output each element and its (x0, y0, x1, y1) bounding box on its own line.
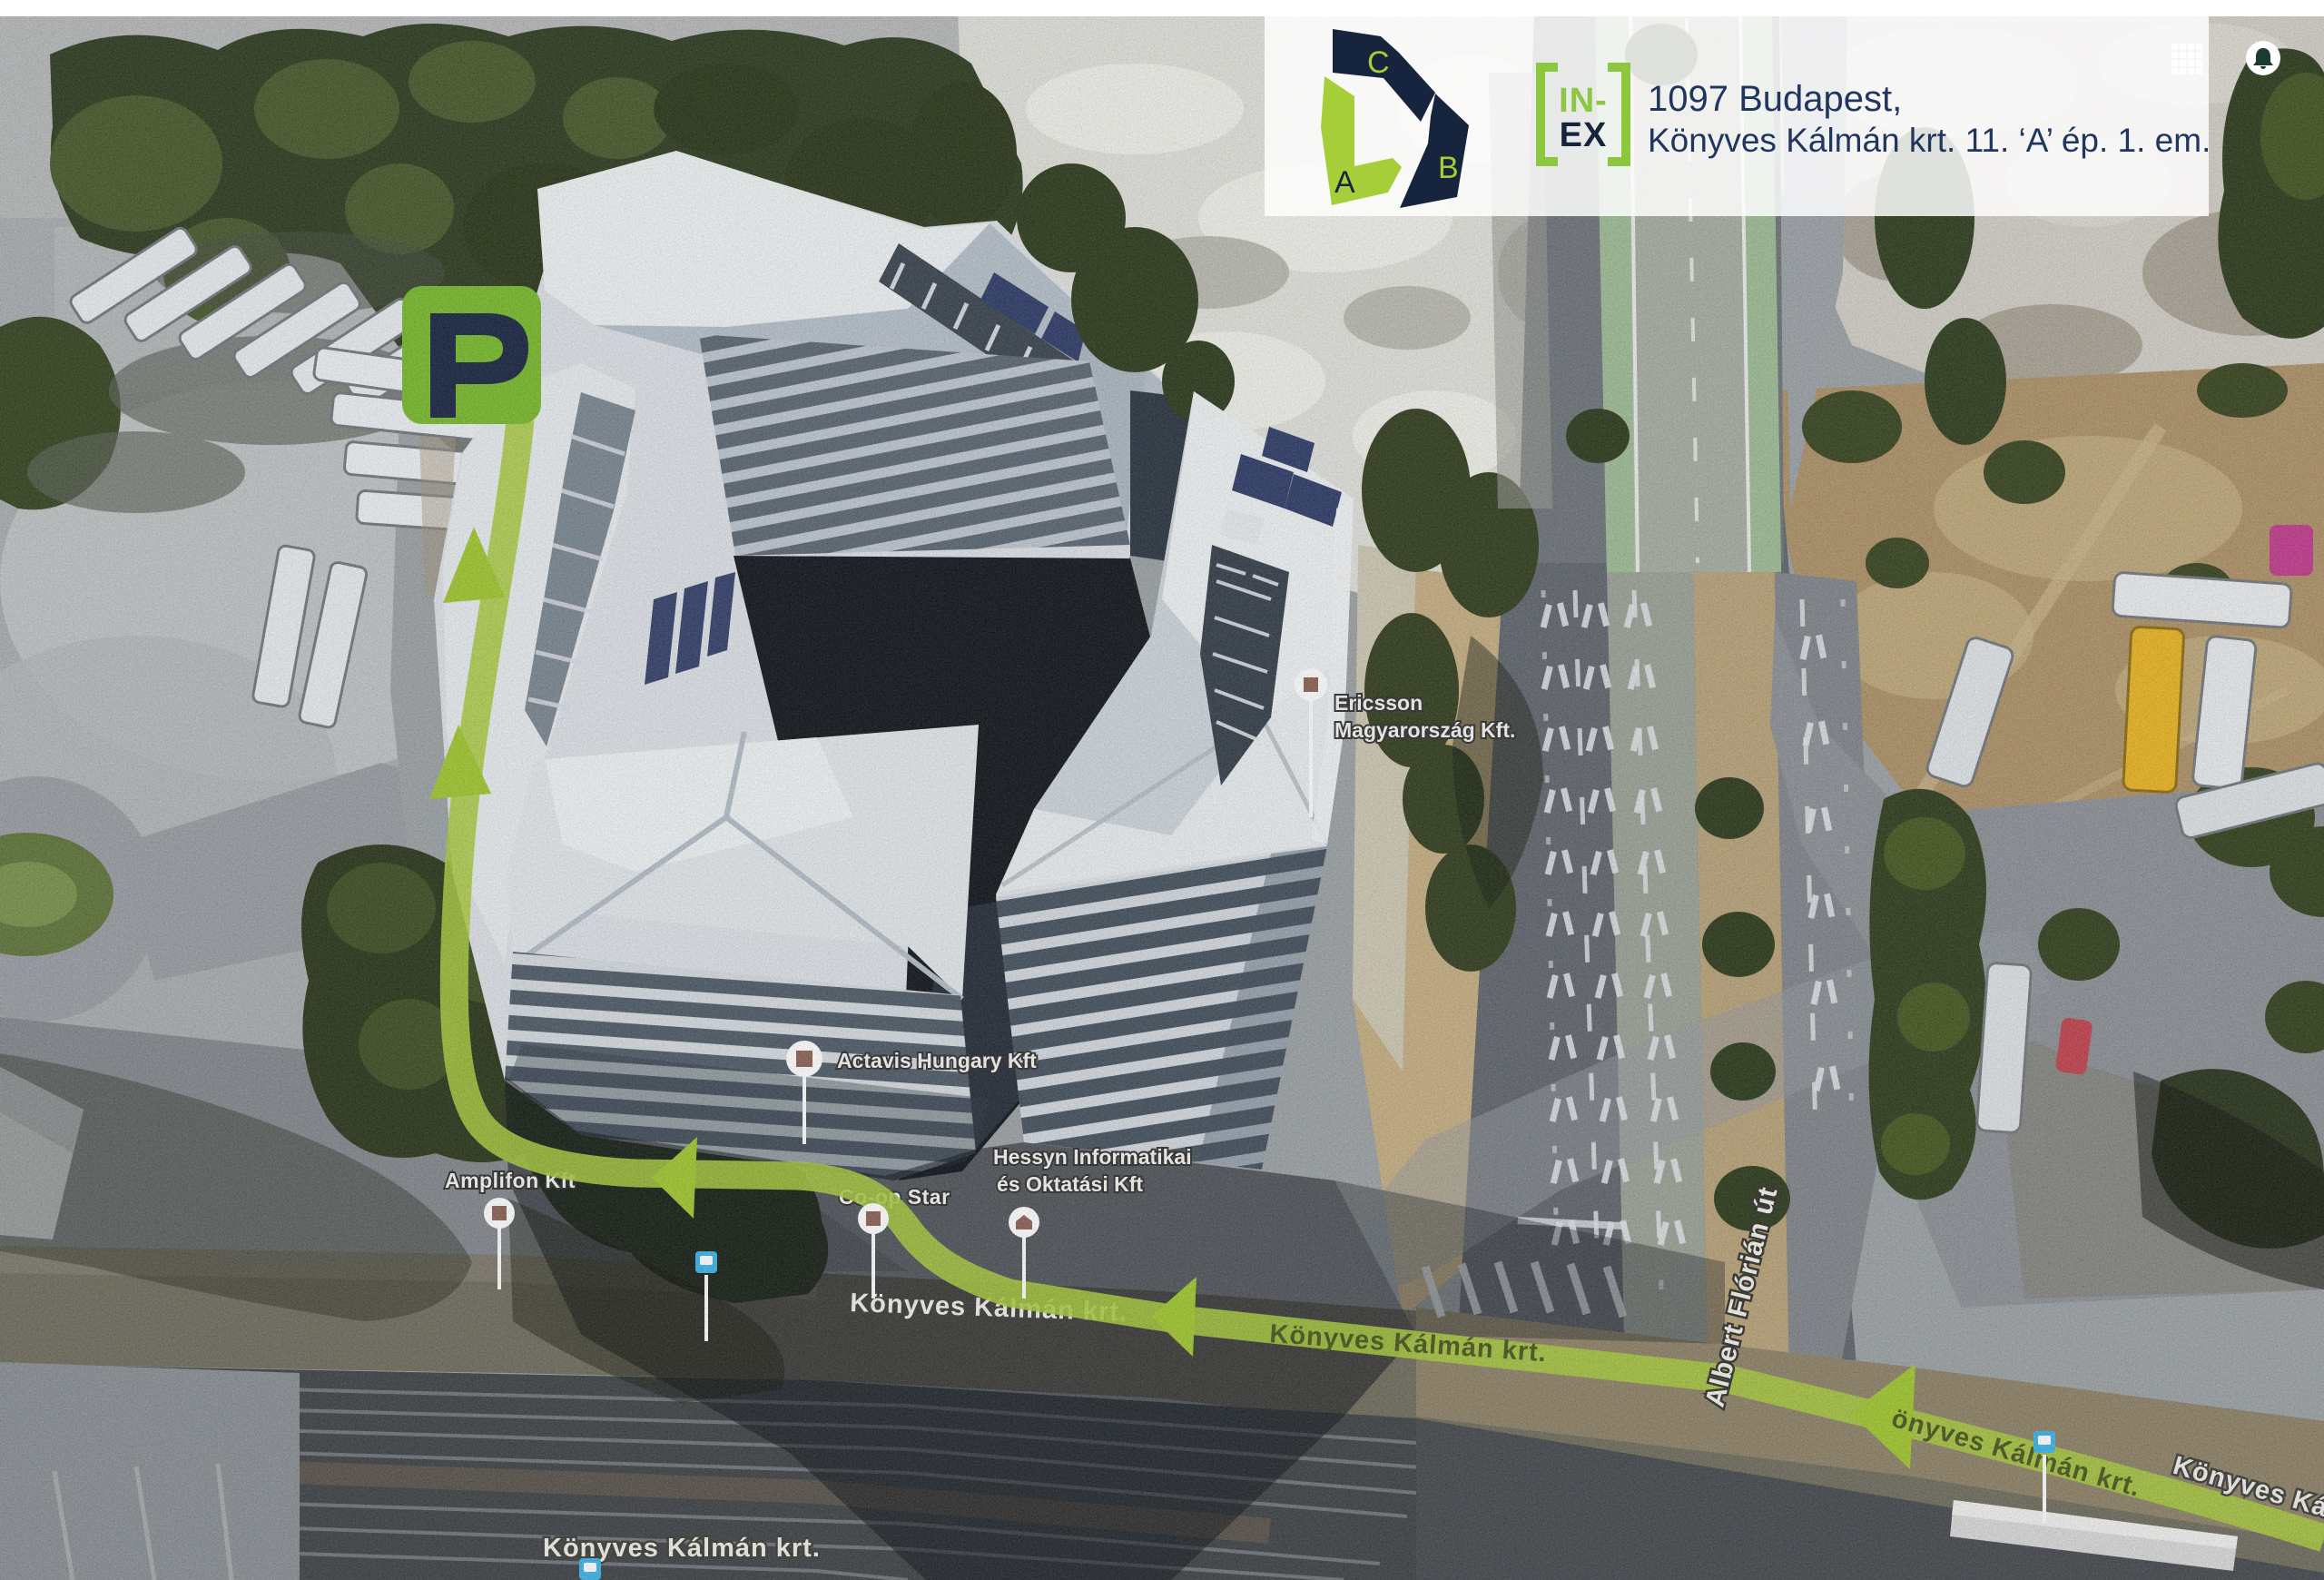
svg-text:EX: EX (1560, 116, 1608, 154)
svg-text:Könyves Kálmán krt. 11. ‘A’ ép: Könyves Kálmán krt. 11. ‘A’ ép. 1. em. (1648, 122, 2211, 159)
svg-text:A: A (1334, 165, 1355, 200)
svg-text:IN-: IN- (1559, 82, 1608, 120)
svg-text:B: B (1438, 151, 1459, 185)
svg-text:1097 Budapest,: 1097 Budapest, (1648, 79, 1902, 119)
svg-text:C: C (1367, 45, 1390, 80)
